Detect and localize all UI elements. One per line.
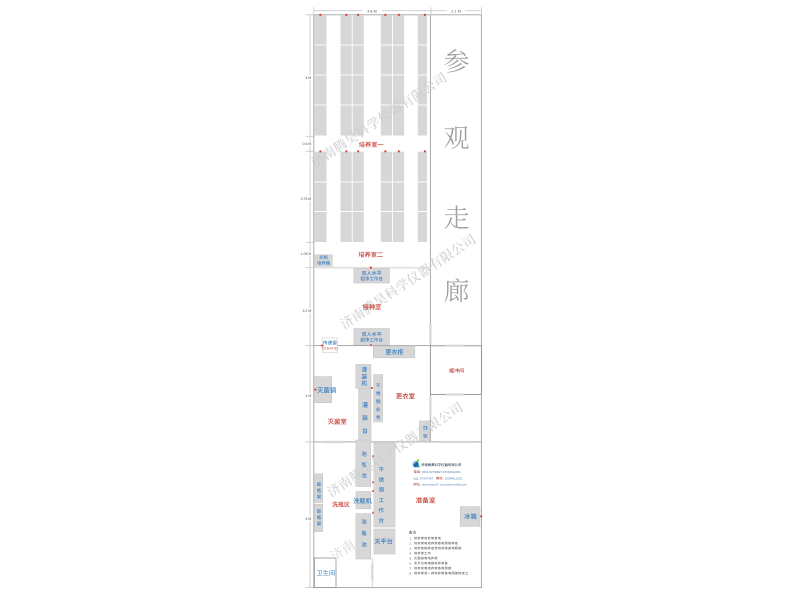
- svg-text:: 0531-82799827,15064612352: : 0531-82799827,15064612352: [420, 470, 461, 474]
- svg-text:3.: 3.: [409, 546, 412, 550]
- svg-text:8.: 8.: [409, 571, 412, 575]
- svg-text::: :: [415, 531, 416, 535]
- svg-text:5 M: 5 M: [305, 76, 311, 80]
- svg-text:4.8 M: 4.8 M: [367, 9, 377, 13]
- svg-text:: www.sypet27.com,www.cnhtkj.c: : www.sypet27.com,www.cnhtkj.com: [420, 483, 467, 487]
- svg-text:2.1 M: 2.1 M: [451, 9, 461, 13]
- svg-text:(0.6×0.6): (0.6×0.6): [322, 347, 338, 351]
- svg-text:6 M: 6 M: [305, 517, 311, 521]
- svg-text:1.05 M: 1.05 M: [301, 252, 312, 256]
- svg-text:1.: 1.: [409, 536, 412, 540]
- svg-text:7.: 7.: [409, 566, 412, 570]
- svg-text:3.75 M: 3.75 M: [301, 197, 312, 201]
- svg-text:5.: 5.: [409, 556, 412, 560]
- svg-text:6.: 6.: [409, 561, 412, 565]
- svg-text:0.6 M: 0.6 M: [303, 142, 312, 146]
- svg-text:: 15064612352: : 15064612352: [443, 476, 463, 480]
- svg-text:2.: 2.: [409, 541, 412, 545]
- svg-text:QQ: 57437467: QQ: 57437467: [414, 476, 434, 480]
- svg-text:3.2 M: 3.2 M: [303, 309, 312, 313]
- svg-text:4.: 4.: [409, 551, 412, 555]
- svg-text:4 M: 4 M: [305, 394, 311, 398]
